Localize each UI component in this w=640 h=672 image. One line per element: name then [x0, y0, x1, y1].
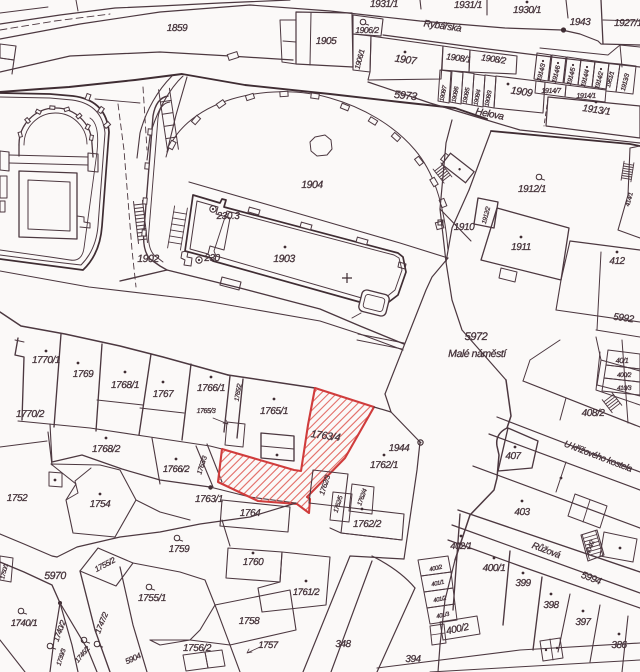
svg-text:1944: 1944 — [389, 443, 410, 454]
svg-text:1943: 1943 — [570, 17, 591, 28]
svg-text:40/1: 40/1 — [616, 356, 629, 365]
svg-text:1911: 1911 — [511, 242, 531, 253]
svg-text:397: 397 — [575, 617, 591, 628]
svg-text:403: 403 — [514, 507, 530, 518]
svg-text:230: 230 — [203, 253, 220, 264]
svg-text:1762/1: 1762/1 — [370, 460, 398, 471]
svg-text:1758: 1758 — [239, 616, 260, 627]
svg-text:1768/1: 1768/1 — [111, 380, 139, 391]
svg-text:1930/1: 1930/1 — [513, 5, 541, 16]
svg-text:1910: 1910 — [454, 222, 475, 233]
svg-text:1770/2: 1770/2 — [16, 409, 45, 420]
svg-text:1914/7: 1914/7 — [541, 86, 562, 95]
svg-text:1761/2: 1761/2 — [293, 587, 321, 598]
svg-text:5970: 5970 — [44, 570, 66, 582]
svg-text:407: 407 — [505, 451, 521, 462]
svg-text:412: 412 — [609, 256, 625, 267]
svg-text:1770/1: 1770/1 — [32, 355, 60, 366]
svg-text:230.3: 230.3 — [216, 211, 241, 222]
svg-text:Malé náměstí: Malé náměstí — [448, 348, 507, 360]
svg-text:1740/1: 1740/1 — [11, 618, 38, 629]
svg-text:1927/1: 1927/1 — [614, 18, 640, 29]
svg-text:1756/2: 1756/2 — [183, 643, 212, 654]
svg-text:402/1: 402/1 — [450, 541, 472, 552]
svg-text:1757: 1757 — [258, 640, 279, 651]
svg-text:1754: 1754 — [90, 499, 111, 510]
svg-text:1905: 1905 — [316, 36, 337, 47]
svg-text:400/1: 400/1 — [483, 563, 506, 574]
svg-text:1767: 1767 — [153, 389, 174, 400]
svg-text:1859: 1859 — [167, 23, 188, 34]
svg-text:1769: 1769 — [73, 369, 94, 380]
svg-text:348: 348 — [335, 639, 351, 650]
svg-text:1759: 1759 — [169, 544, 190, 555]
svg-text:408/2: 408/2 — [582, 408, 606, 419]
svg-text:1765/1: 1765/1 — [260, 406, 288, 417]
svg-text:1760: 1760 — [243, 557, 264, 568]
svg-text:1765/3: 1765/3 — [197, 407, 216, 415]
svg-text:5972: 5972 — [465, 331, 488, 343]
svg-text:1931/1: 1931/1 — [370, 0, 398, 10]
svg-text:1752: 1752 — [7, 493, 28, 504]
svg-text:399: 399 — [515, 578, 531, 589]
svg-text:1766/2: 1766/2 — [163, 464, 191, 475]
svg-text:1755/1: 1755/1 — [138, 593, 166, 604]
svg-text:1763/1: 1763/1 — [195, 494, 223, 505]
svg-text:398: 398 — [543, 600, 559, 611]
svg-text:1903: 1903 — [273, 253, 295, 265]
svg-text:1912/1: 1912/1 — [518, 184, 546, 195]
svg-text:1904: 1904 — [301, 179, 323, 191]
svg-text:1762/2: 1762/2 — [353, 519, 382, 530]
svg-text:1931/1: 1931/1 — [454, 0, 482, 11]
svg-text:1768/2: 1768/2 — [92, 444, 121, 455]
svg-text:1906/2: 1906/2 — [355, 25, 379, 35]
svg-text:1766/1: 1766/1 — [197, 383, 225, 394]
svg-text:1914/1: 1914/1 — [576, 91, 596, 100]
